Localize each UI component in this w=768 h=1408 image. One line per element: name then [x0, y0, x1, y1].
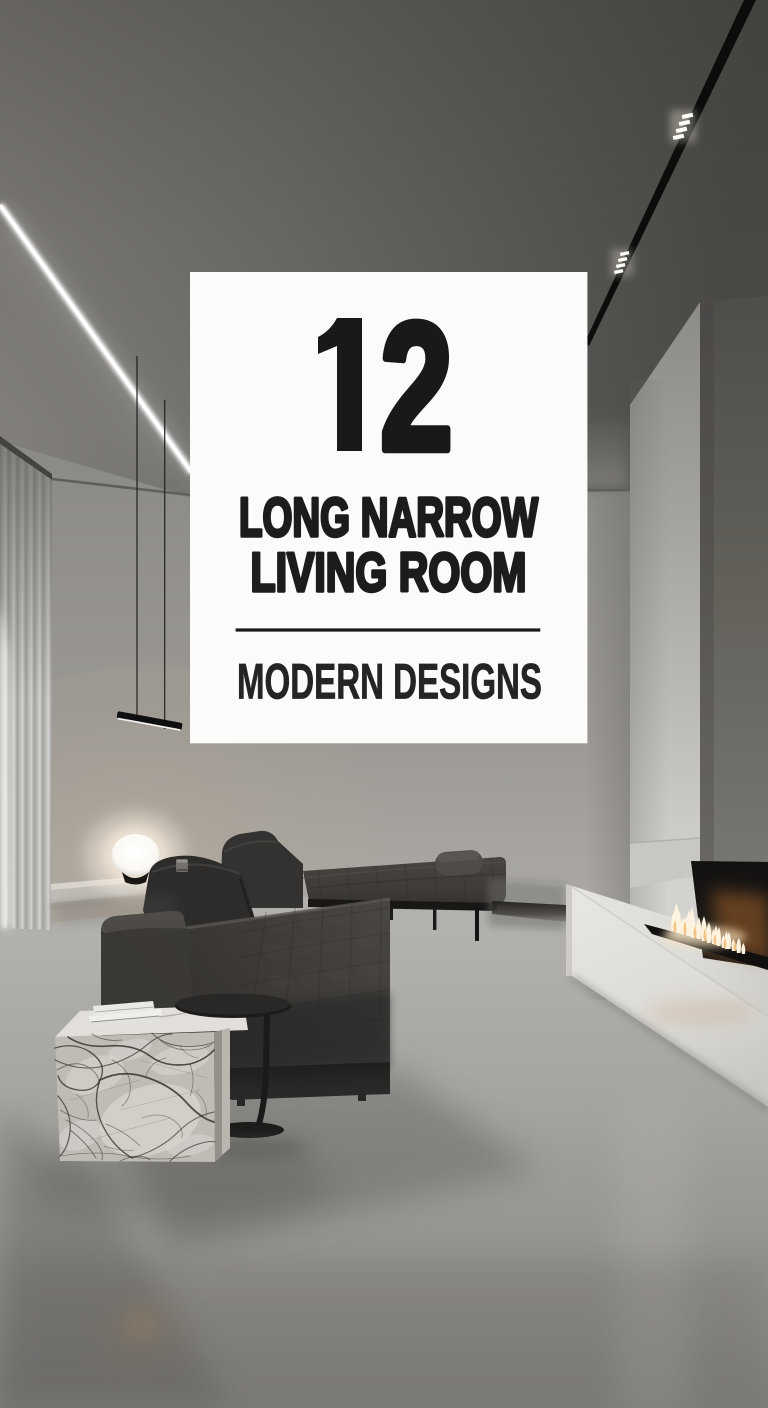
svg-text:MODERN DESIGNS: MODERN DESIGNS — [237, 654, 542, 710]
svg-text:LONG NARROW: LONG NARROW — [239, 486, 538, 548]
svg-text:LIVING ROOM: LIVING ROOM — [251, 541, 527, 603]
svg-text:2: 2 — [380, 285, 453, 489]
